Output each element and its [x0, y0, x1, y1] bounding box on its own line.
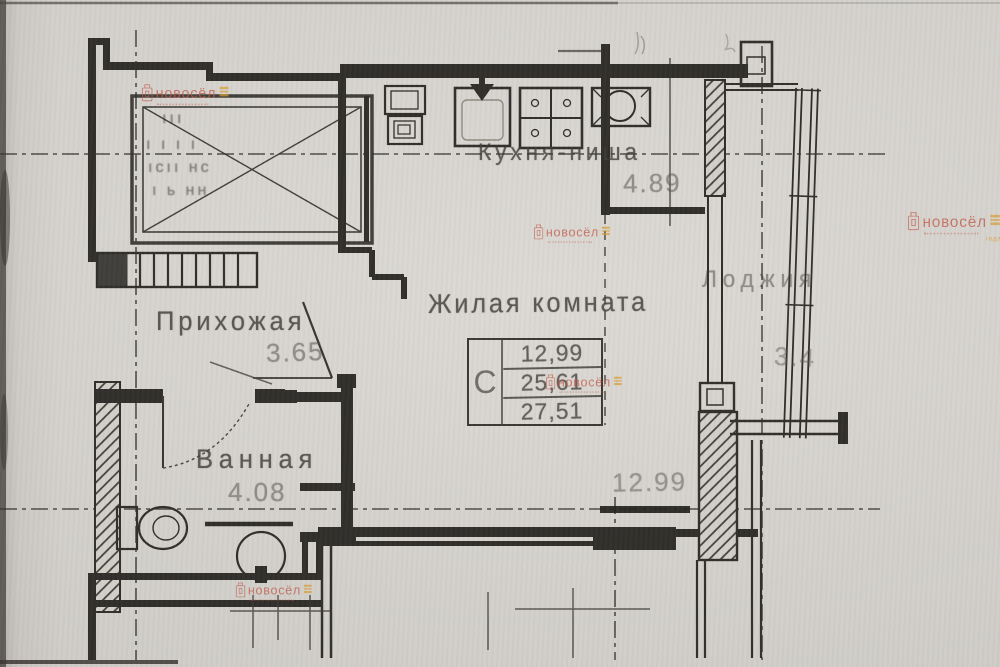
kitchen-sink-icon — [455, 72, 510, 146]
watermark-badge — [304, 585, 312, 593]
watermark-novosel: новосёл — [534, 226, 609, 239]
watermark-caption: года — [986, 234, 1000, 242]
watermark-novosel: новосёл года — [908, 214, 1000, 230]
room-label-loggia: Лоджия — [702, 266, 817, 294]
stepped-wall — [342, 250, 404, 299]
pencil-marks — [635, 32, 735, 54]
watermark-novosel: новосёл — [546, 376, 621, 389]
dimension-hallway: 3.65 — [265, 336, 325, 369]
room-label-kitchen: Кухня-ниша — [478, 139, 641, 167]
toilet-icon — [117, 507, 187, 549]
watermark-novosel: новосёл — [142, 86, 228, 101]
wash-basin-icon — [592, 88, 650, 126]
watermark-badge — [219, 87, 228, 96]
house-logo-icon — [142, 88, 152, 102]
watermark-text: новосёл — [558, 376, 611, 389]
dimension-ticks — [488, 588, 650, 658]
watermark-novosel: новосёл — [236, 584, 311, 597]
area-table-letter: С — [469, 340, 503, 424]
illegible-pencil-marks: ı ь нн — [152, 182, 209, 200]
stair-treads — [97, 253, 257, 287]
room-label-living: Жилая комната — [428, 287, 648, 320]
house-logo-icon — [546, 377, 555, 389]
watermark-badge — [990, 215, 999, 225]
watermark-text: новосёл — [546, 226, 599, 239]
bathroom-zone — [88, 382, 332, 660]
dimension-bottom: 12.99 — [612, 466, 688, 498]
living-room-walls — [318, 506, 758, 658]
house-logo-icon — [236, 585, 245, 597]
house-logo-icon — [908, 216, 919, 230]
watermark-text: новосёл — [248, 584, 301, 597]
door-leaf — [210, 362, 272, 384]
illegible-pencil-marks: ı ı ı ı — [146, 136, 198, 154]
dimension-bathroom: 4.08 — [228, 477, 287, 508]
loggia-glazing — [781, 88, 821, 439]
house-logo-icon — [534, 227, 543, 239]
watermark-text: новосёл — [156, 86, 217, 100]
loggia-zone — [697, 42, 848, 658]
vent-shaft-icon — [385, 86, 425, 144]
dimension-loggia: 3.4 — [773, 341, 817, 374]
watermark-text: новосёл — [922, 214, 986, 229]
room-label-hallway: Прихожая — [156, 306, 305, 337]
watermark-badge — [602, 227, 610, 235]
scanned-floor-plan: Прихожая 3.65 Ванная 4.08 Жилая комната … — [0, 0, 1000, 667]
watermark-badge — [614, 377, 622, 385]
dimension-kitchen: 4.89 — [623, 167, 682, 199]
room-label-bathroom: Ванная — [196, 444, 318, 475]
illegible-pencil-marks: ııı — [162, 110, 184, 128]
area-value-living: 12,99 — [503, 339, 602, 370]
illegible-pencil-marks: ıcıı нc — [148, 159, 212, 177]
area-value-with-loggia: 27,51 — [503, 397, 602, 426]
